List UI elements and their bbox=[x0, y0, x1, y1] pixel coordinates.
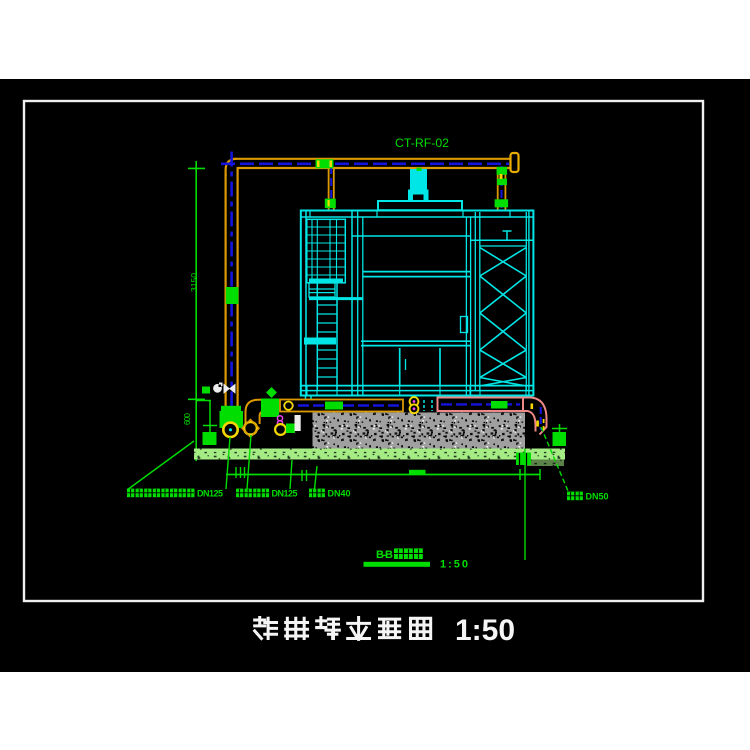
svg-text:600: 600 bbox=[183, 412, 192, 425]
svg-text:DN50: DN50 bbox=[586, 492, 609, 502]
svg-text:3150: 3150 bbox=[189, 273, 199, 292]
svg-text:1:50: 1:50 bbox=[455, 614, 515, 647]
svg-text:CT-RF-02: CT-RF-02 bbox=[395, 136, 449, 150]
svg-text:1:50: 1:50 bbox=[440, 559, 468, 571]
svg-text:B-B: B-B bbox=[376, 549, 393, 561]
svg-text:DN40: DN40 bbox=[328, 489, 351, 499]
svg-text:DN125: DN125 bbox=[197, 489, 223, 499]
svg-text:DN125: DN125 bbox=[272, 489, 298, 499]
